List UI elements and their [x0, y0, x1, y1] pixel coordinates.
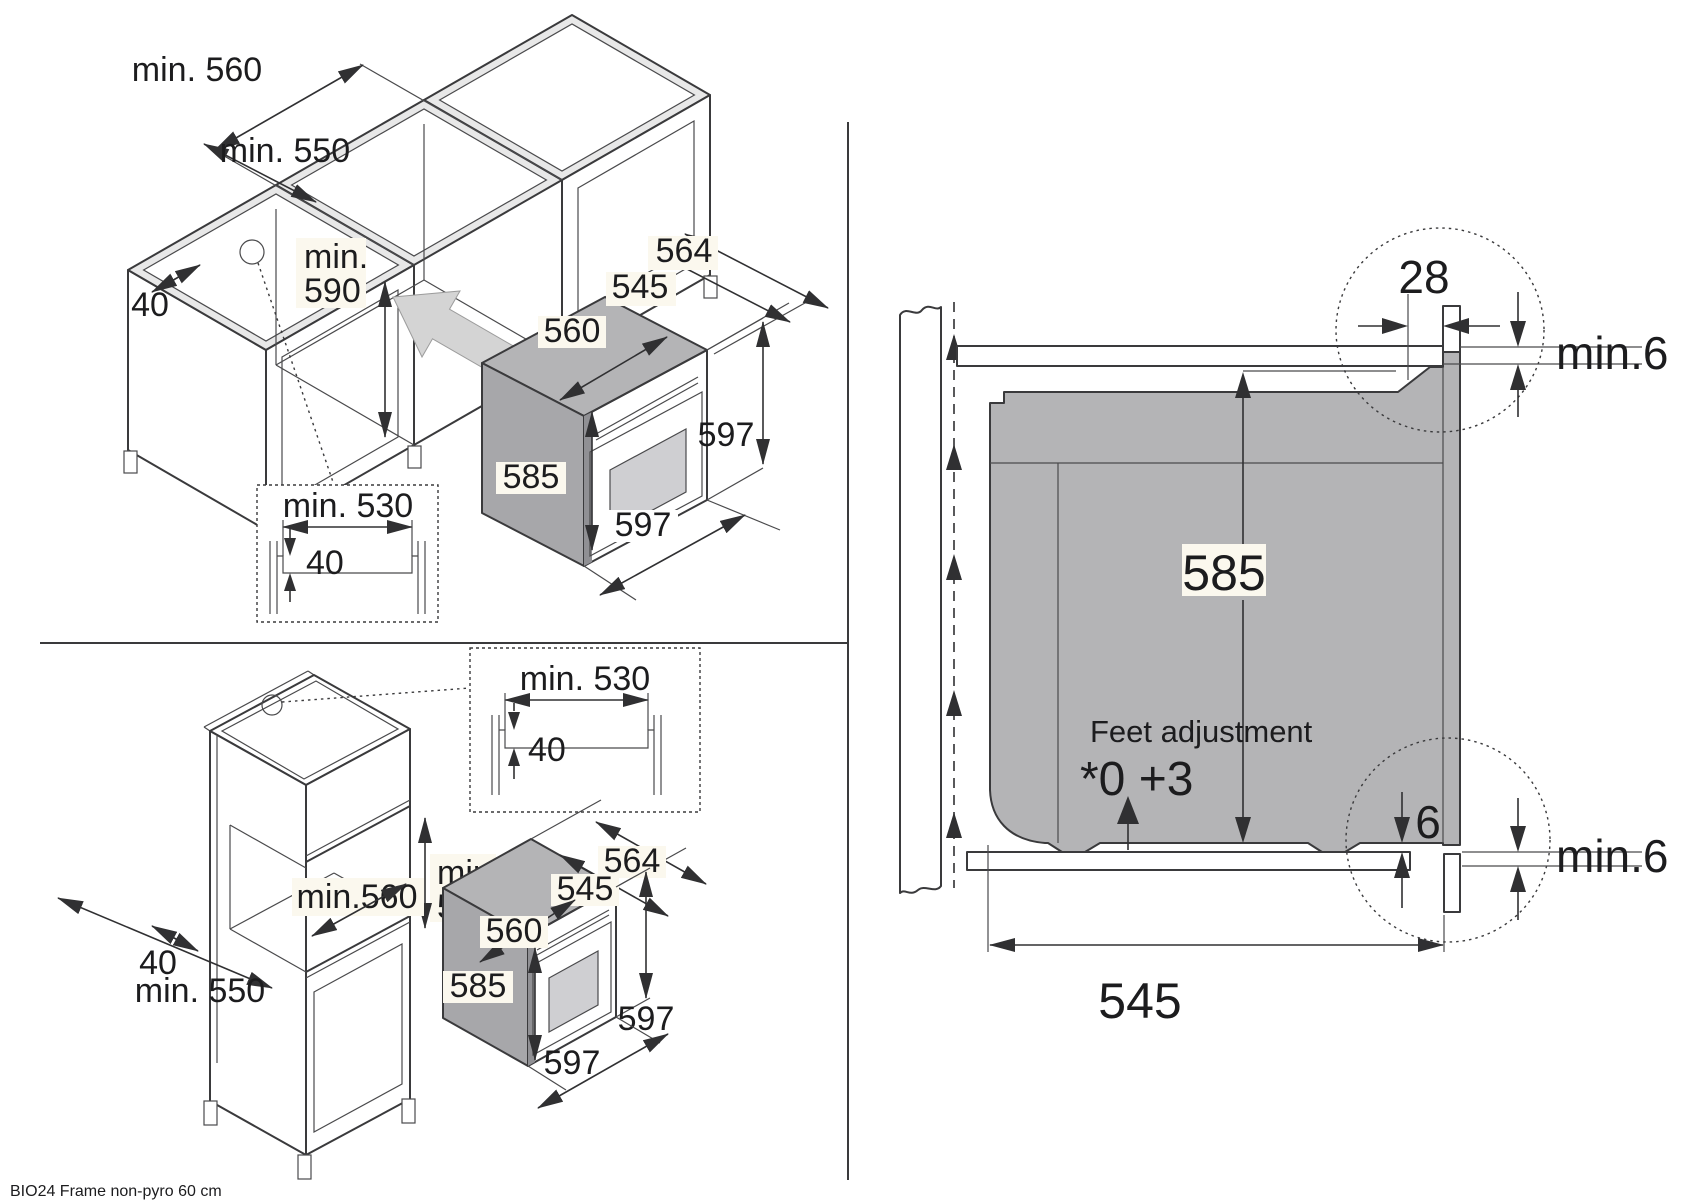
feet-adjustment-label: Feet adjustment — [1090, 714, 1313, 749]
min-depth-label: min. 550 — [220, 132, 350, 170]
airflow-arrow-icon — [946, 690, 962, 716]
oven-door-edge — [584, 412, 592, 566]
section-view: 585 Feet adjustment *0 +3 545 28 — [900, 228, 1668, 1029]
oven-597-bottom-label: 597 — [544, 1044, 601, 1082]
bottom-shelf — [967, 852, 1410, 870]
tall-detail-inset: min. 530 40 — [470, 648, 700, 812]
base-cabinet-view: min. 560 min. 550 min. 590 40 min. 530 — [124, 15, 828, 622]
oven-585-label: 585 — [450, 967, 507, 1005]
min-depth-label: min. 550 — [135, 972, 265, 1010]
section-6-label: 6 — [1415, 796, 1441, 848]
airflow-arrow-icon — [946, 444, 962, 470]
oven-597-right-label: 597 — [698, 416, 755, 454]
column-side-face — [210, 731, 306, 1155]
column-front-face — [306, 729, 410, 1155]
rail-label: 40 — [131, 286, 169, 324]
inset-depth-label: 40 — [528, 731, 566, 769]
feet-adjustment-values: *0 +3 — [1080, 753, 1193, 806]
oven-560-label: 560 — [544, 312, 601, 350]
oven-597-right-label: 597 — [618, 1000, 675, 1038]
tall-cabinet — [204, 671, 415, 1179]
oven-body-section — [990, 352, 1460, 852]
base-detail-inset: min. 530 40 — [257, 485, 438, 622]
oven-frame-bottom-lip — [1444, 854, 1460, 912]
inset-width-label: min. 530 — [283, 487, 413, 525]
section-585-label: 585 — [1182, 545, 1265, 601]
min-width-label: min. 560 — [132, 51, 262, 89]
oven-545-label: 545 — [612, 268, 669, 306]
oven-560-label: 560 — [486, 912, 543, 950]
min-height-label-2: 590 — [304, 272, 361, 310]
wall — [900, 307, 941, 893]
oven-door-glass — [549, 951, 598, 1032]
inset-width-label: min. 530 — [520, 660, 650, 698]
oven-545-label: 545 — [557, 870, 614, 908]
inset-depth-label: 40 — [306, 544, 344, 582]
oven-585-label: 585 — [503, 458, 560, 496]
section-28-label: 28 — [1398, 251, 1449, 303]
oven-door-edge — [528, 932, 535, 1066]
tall-cabinet-view: min. 530 40 min. 590 min.560 — [58, 648, 706, 1179]
oven-564-label: 564 — [656, 232, 713, 270]
oven-597-bottom-label: 597 — [615, 506, 672, 544]
section-top-gap-label: min.6 — [1556, 327, 1668, 379]
countertop — [957, 346, 1443, 366]
footer-model-label: BIO24 Frame non-pyro 60 cm — [10, 1183, 222, 1200]
airflow-arrow-icon — [946, 554, 962, 580]
airflow-arrow-icon — [946, 812, 962, 838]
diagram-canvas: min. 560 min. 550 min. 590 40 min. 530 — [0, 0, 1697, 1200]
section-bottom-gap-label: min.6 — [1556, 830, 1668, 882]
section-545-dim: 545 — [988, 845, 1444, 1029]
airflow-indicator — [946, 302, 962, 888]
min-height-label-1: min. — [304, 238, 368, 276]
section-545-label: 545 — [1098, 973, 1181, 1029]
installation-diagram-page: min. 560 min. 550 min. 590 40 min. 530 — [0, 0, 1697, 1200]
